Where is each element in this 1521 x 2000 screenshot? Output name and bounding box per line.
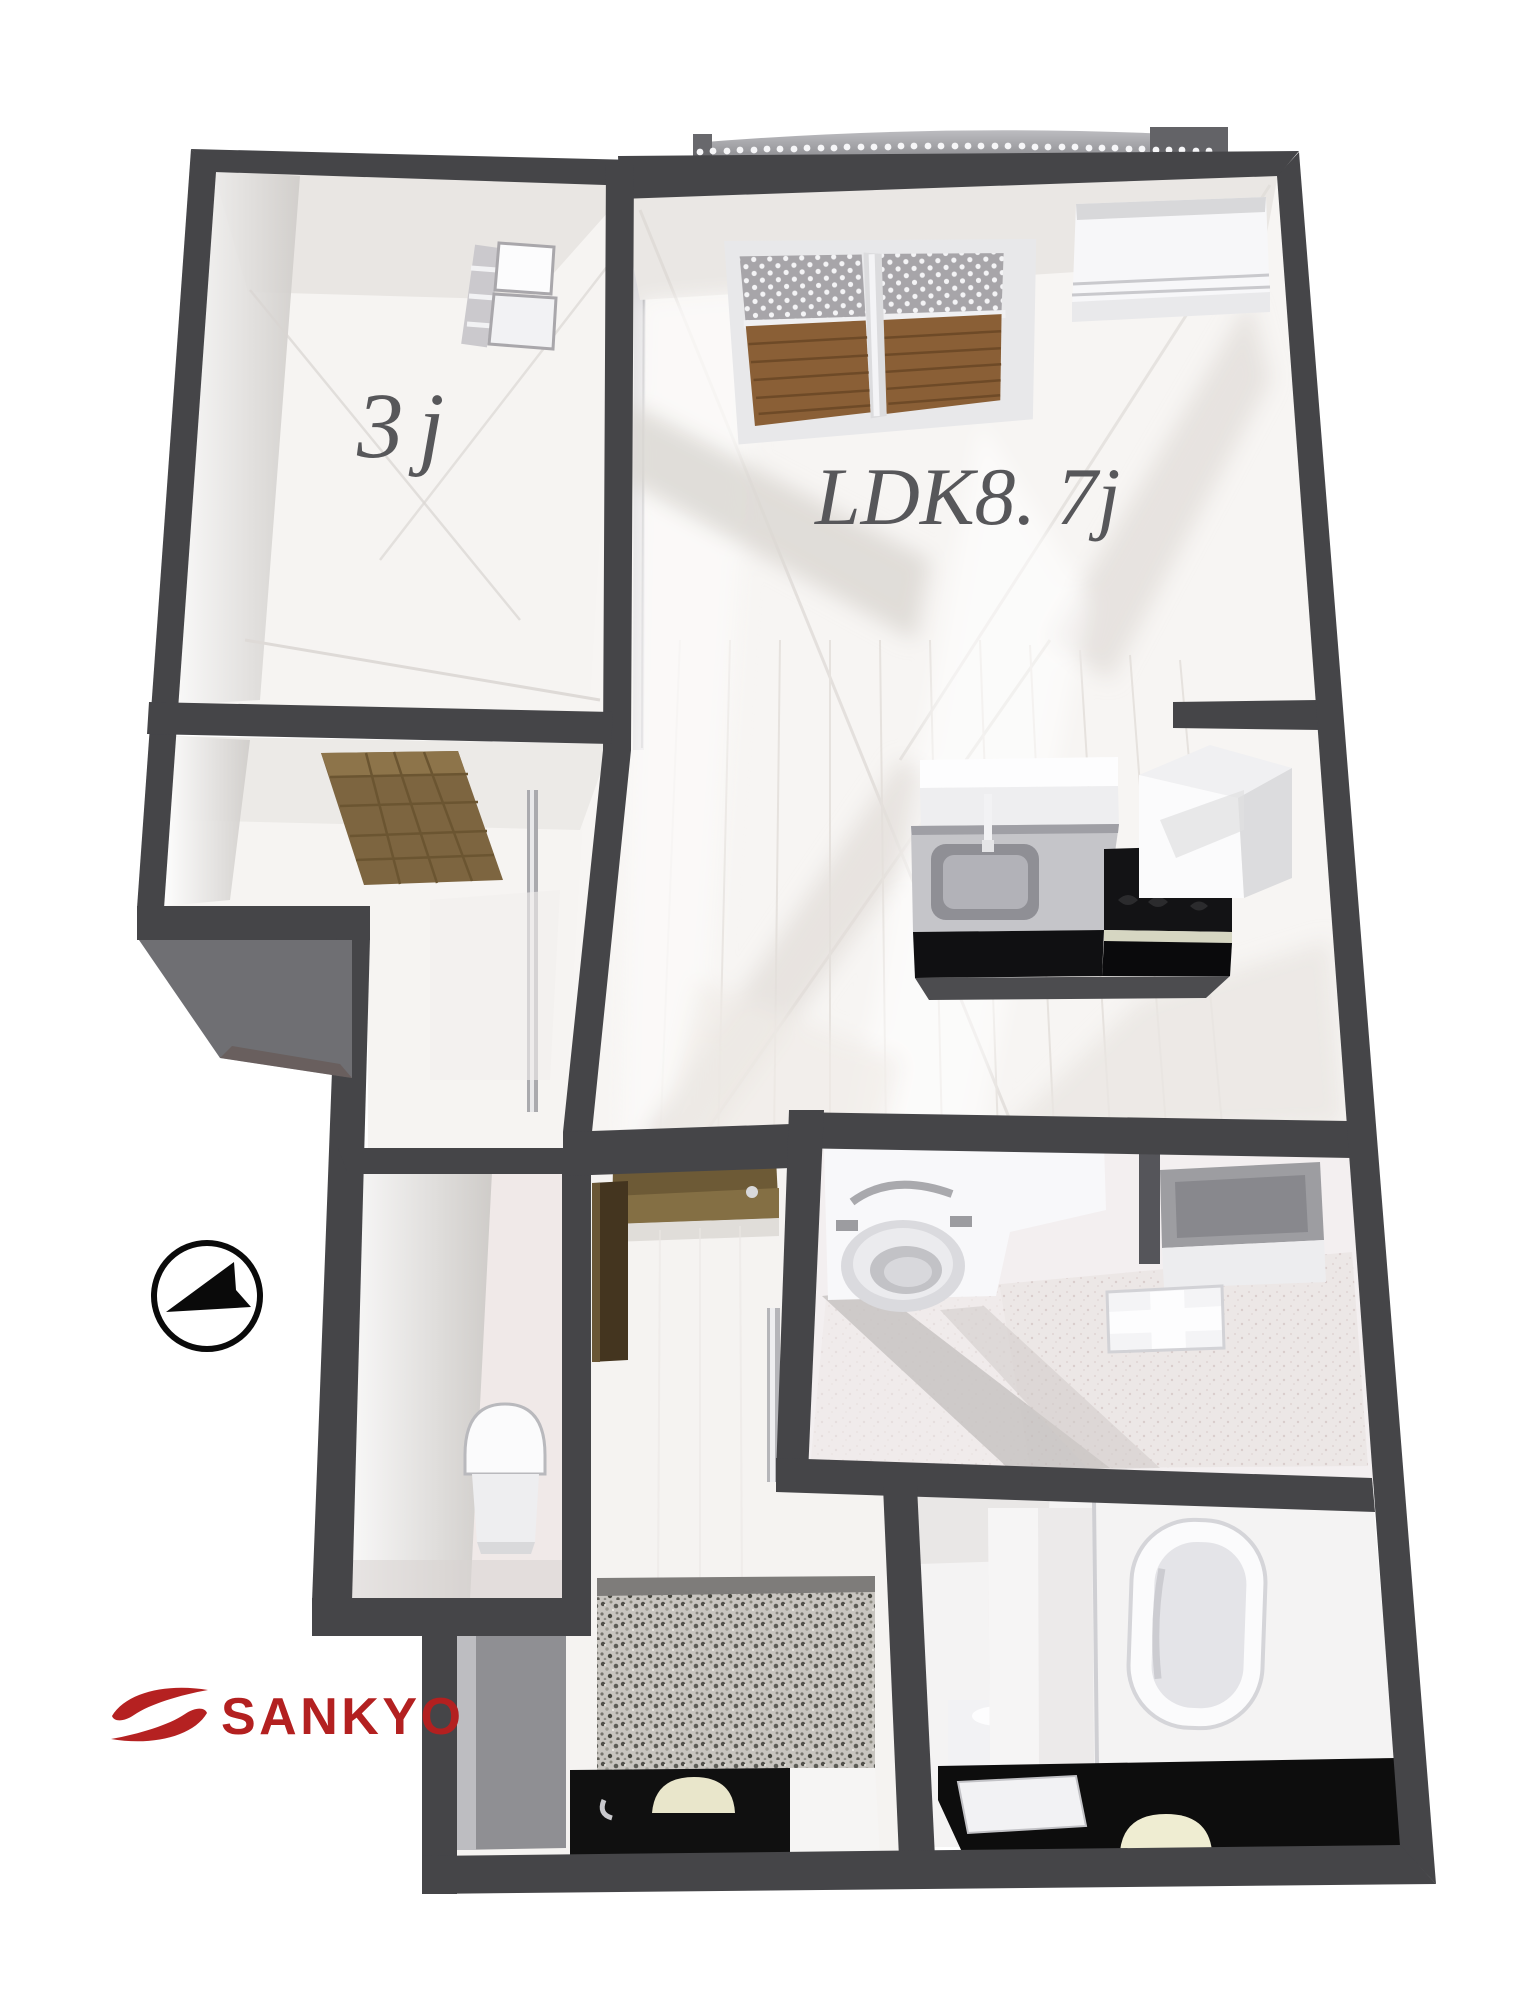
svg-text:LDK8. 7j: LDK8. 7j: [814, 451, 1120, 542]
svg-text:SANKYO: SANKYO: [221, 1688, 464, 1746]
svg-text:3j: 3j: [356, 375, 444, 478]
